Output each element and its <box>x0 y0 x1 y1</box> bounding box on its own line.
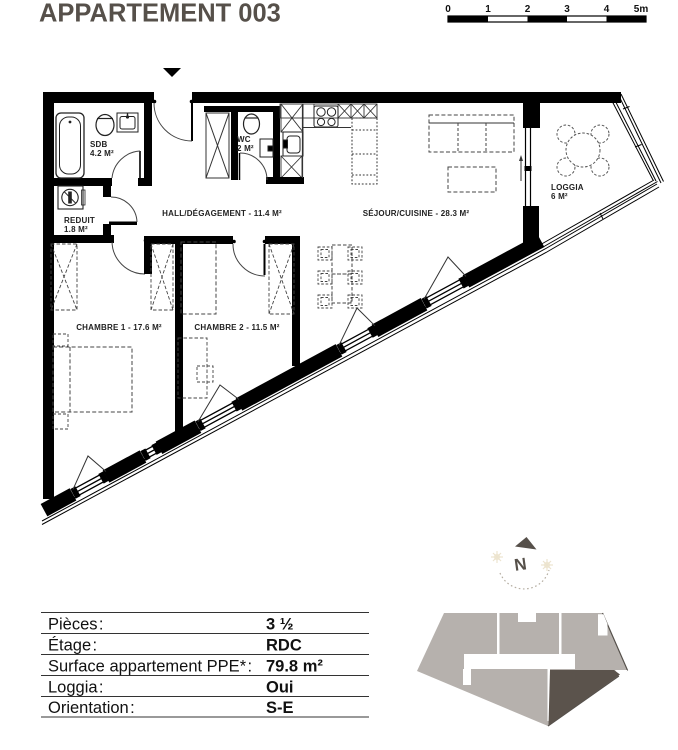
svg-text:2 M²: 2 M² <box>237 144 254 153</box>
svg-text:4.2 M²: 4.2 M² <box>90 149 114 158</box>
svg-text:HALL/DÉGAGEMENT - 11.4 M²: HALL/DÉGAGEMENT - 11.4 M² <box>162 209 282 218</box>
svg-text:Loggia :: Loggia : <box>48 679 104 697</box>
svg-text:SÉJOUR/CUISINE - 28.3 M²: SÉJOUR/CUISINE - 28.3 M² <box>363 209 470 218</box>
svg-text:LOGGIA: LOGGIA <box>551 183 584 192</box>
svg-text:APPARTEMENT 003: APPARTEMENT 003 <box>39 0 281 28</box>
svg-text:Orientation :: Orientation : <box>48 699 135 717</box>
svg-text:S-E: S-E <box>266 699 294 717</box>
svg-text:1.8 M²: 1.8 M² <box>64 225 88 234</box>
svg-text:CHAMBRE 2 - 11.5 M²: CHAMBRE 2 - 11.5 M² <box>194 323 279 332</box>
svg-text:Étage :: Étage : <box>48 636 97 655</box>
svg-text:4: 4 <box>604 4 610 15</box>
svg-text:WC: WC <box>237 135 251 144</box>
svg-text:79.8 m²: 79.8 m² <box>266 658 323 676</box>
svg-text:3 ½: 3 ½ <box>266 616 294 634</box>
svg-text:0: 0 <box>445 4 451 15</box>
svg-text:3: 3 <box>564 4 570 15</box>
svg-text:RDC: RDC <box>266 637 302 655</box>
svg-text:N: N <box>513 554 528 575</box>
svg-text:Pièces :: Pièces : <box>48 616 104 634</box>
svg-text:REDUIT: REDUIT <box>64 216 95 225</box>
svg-text:SDB: SDB <box>90 140 108 149</box>
svg-text:Oui: Oui <box>266 679 294 697</box>
svg-text:5m: 5m <box>634 4 649 15</box>
svg-text:Surface appartement PPE* :: Surface appartement PPE* : <box>48 658 252 676</box>
svg-text:CHAMBRE 1 - 17.6 M²: CHAMBRE 1 - 17.6 M² <box>76 323 162 332</box>
svg-text:1: 1 <box>485 4 491 15</box>
svg-text:2: 2 <box>525 4 531 15</box>
svg-text:6 M²: 6 M² <box>551 192 568 201</box>
